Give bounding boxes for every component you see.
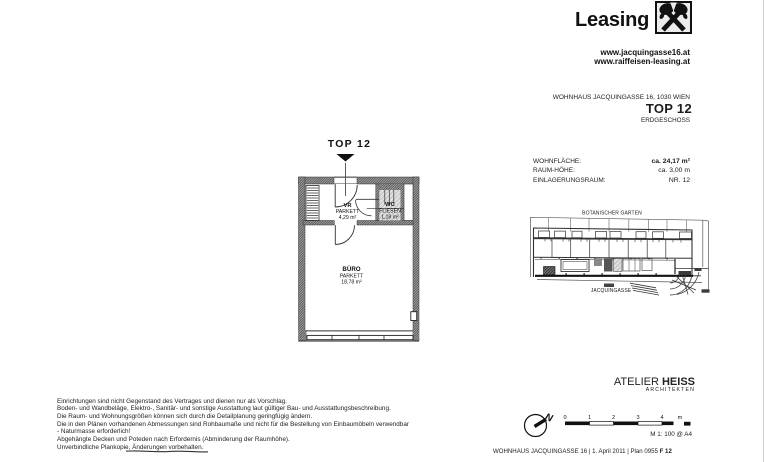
svg-text:TOP 12: TOP 12 [328, 138, 372, 150]
svg-text:1: 1 [588, 415, 591, 421]
svg-text:3: 3 [636, 415, 639, 421]
svg-text:WC: WC [385, 202, 395, 208]
svg-text:4: 4 [660, 415, 663, 421]
svg-text:m: m [678, 415, 683, 421]
svg-text:4,29 m²: 4,29 m² [339, 215, 357, 221]
svg-text:N: N [543, 412, 554, 425]
svg-text:BOTANISCHER GARTEN: BOTANISCHER GARTEN [582, 211, 642, 217]
svg-text:JACQUINGASSE: JACQUINGASSE [591, 288, 632, 294]
svg-text:2: 2 [612, 415, 615, 421]
svg-text:0: 0 [563, 415, 566, 421]
svg-text:18,78 m²: 18,78 m² [341, 280, 362, 286]
svg-text:1,18 m²: 1,18 m² [381, 215, 399, 221]
svg-text:BÜRO: BÜRO [342, 266, 360, 273]
